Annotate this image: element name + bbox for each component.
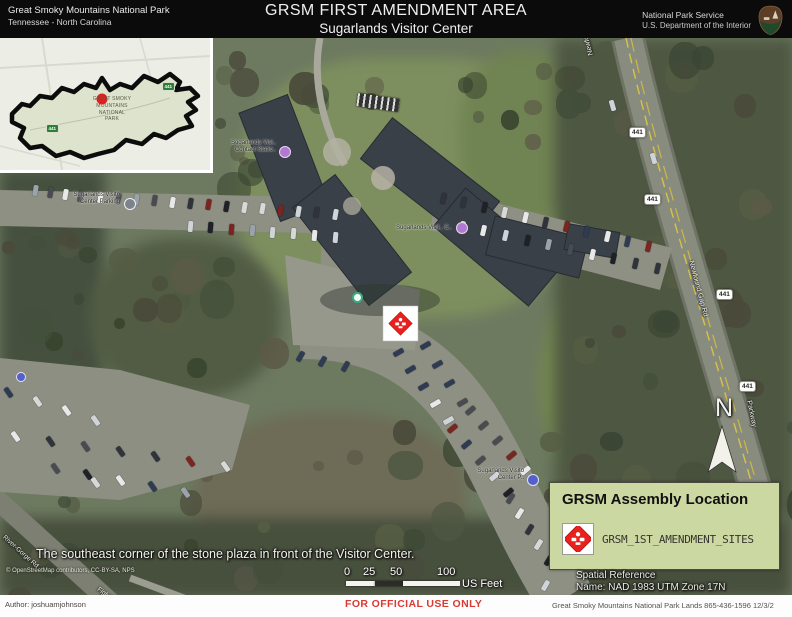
car (291, 228, 297, 239)
poi-label-south-parking: Sugarlands Visito Center P.. (470, 468, 524, 481)
car (523, 234, 530, 246)
car (603, 230, 610, 242)
park-contact-info: Great Smoky Mountains National Park Land… (552, 601, 774, 610)
car (514, 508, 524, 520)
car (653, 262, 660, 274)
car (419, 340, 431, 350)
north-label: N (698, 394, 750, 423)
route-shield-441: 441 (739, 381, 756, 392)
poi-label-parking: Sugarlands Visito Center Parking (62, 192, 120, 205)
car (417, 381, 429, 391)
car (115, 474, 125, 486)
car (501, 206, 508, 218)
inset-shield-441b: 441 (46, 124, 59, 133)
scale-unit: US Feet (462, 578, 502, 590)
car (524, 523, 534, 535)
car (32, 395, 42, 407)
car (340, 360, 350, 372)
car (3, 386, 13, 398)
car (249, 225, 255, 236)
car (521, 211, 528, 223)
car (32, 184, 39, 196)
car (492, 435, 504, 446)
spatial-reference: Spatial Reference Name: NAD 1983 UTM Zon… (576, 570, 726, 593)
car (464, 405, 476, 416)
car (439, 192, 446, 204)
scale-tick-25: 25 (363, 566, 375, 578)
car (313, 207, 320, 219)
poi-label-visitor-center: Sugarlands Visit.. C.. (370, 225, 452, 232)
car (150, 450, 160, 462)
car (610, 253, 617, 265)
car (270, 227, 276, 238)
visitor-center-marker (456, 222, 468, 234)
car (47, 186, 54, 198)
scale-segment (346, 581, 375, 586)
scale-tick-50: 50 (390, 566, 402, 578)
car (442, 415, 454, 425)
car (478, 420, 490, 431)
car (169, 196, 176, 208)
site-point-marker (352, 292, 363, 303)
footer-bar: Author: joshuamjohnson FOR OFFICIAL USE … (0, 595, 792, 617)
car (90, 476, 100, 488)
car (446, 423, 458, 434)
car (533, 539, 543, 551)
north-indicator: N (698, 394, 750, 423)
car (80, 440, 90, 452)
car (649, 152, 657, 164)
header-left: Great Smoky Mountains National Park Tenn… (8, 5, 170, 28)
car (392, 347, 404, 357)
legend-box: GRSM Assembly Location GRSM_1ST_AMENDMEN… (549, 482, 780, 570)
park-states: Tennessee - North Carolina (8, 17, 170, 28)
scale-tick-100: 100 (437, 566, 455, 578)
car (567, 243, 574, 255)
car (480, 202, 487, 214)
agency-name: National Park Service (642, 10, 751, 21)
car (45, 435, 55, 447)
car (318, 355, 328, 367)
official-use-notice: FOR OFFICIAL USE ONLY (345, 598, 482, 610)
car (460, 439, 472, 450)
car (502, 229, 509, 241)
car (460, 197, 467, 209)
car (644, 240, 651, 252)
car (228, 223, 234, 234)
inset-locator-map: GREAT SMOKY MOUNTAINS NATIONAL PARK 441 … (0, 38, 213, 173)
parking-marker (124, 198, 136, 210)
inset-park-label: GREAT SMOKY MOUNTAINS NATIONAL PARK (72, 96, 152, 123)
car (588, 248, 595, 260)
car (259, 203, 266, 215)
legend-swatch (562, 523, 594, 555)
header-bar: Great Smoky Mountains National Park Tenn… (0, 0, 792, 38)
south-parking-marker (527, 474, 539, 486)
car (505, 450, 517, 461)
car (332, 231, 338, 242)
route-shield-441: 441 (716, 289, 733, 300)
car (295, 350, 305, 362)
map-attribution: © OpenStreetMap contributors, CC-BY-SA, … (6, 568, 135, 574)
car (404, 364, 416, 374)
car (431, 359, 443, 369)
car (545, 239, 552, 251)
legend-title: GRSM Assembly Location (562, 491, 748, 508)
site-caption: The southeast corner of the stone plaza … (36, 547, 414, 561)
car (61, 405, 71, 417)
car (185, 455, 195, 467)
car (205, 199, 212, 211)
park-name: Great Smoky Mountains National Park (8, 5, 170, 17)
car (115, 445, 125, 457)
route-shield-441: 441 (629, 127, 646, 138)
car (277, 204, 284, 216)
car (187, 220, 193, 231)
car (187, 198, 194, 210)
car (208, 222, 214, 233)
car (456, 397, 468, 407)
inset-shield-441: 441 (162, 82, 175, 91)
map-title: GRSM FIRST AMENDMENT AREA (265, 2, 527, 20)
car (562, 221, 569, 233)
car (90, 414, 100, 426)
spatial-reference-name: Name: NAD 1983 UTM Zone 17N (576, 582, 726, 594)
car (180, 486, 190, 498)
car (220, 460, 230, 472)
car (540, 579, 550, 591)
map-canvas: Sugarlands Visito Center Parking Sugarla… (0, 38, 792, 595)
scale-segment (403, 581, 460, 586)
car (583, 226, 590, 238)
map-document: Great Smoky Mountains National Park Tenn… (0, 0, 792, 617)
car (480, 225, 487, 237)
agency-dept: U.S. Department of the Interior (642, 21, 751, 31)
car (542, 216, 549, 228)
spatial-reference-title: Spatial Reference (576, 570, 726, 582)
nps-arrowhead-icon (757, 5, 784, 36)
contact-station-marker (279, 146, 291, 158)
car (50, 462, 60, 474)
scale-tick-0: 0 (344, 566, 350, 578)
car (241, 202, 248, 214)
car (444, 378, 456, 388)
car (151, 195, 158, 207)
car (429, 398, 441, 408)
author-credit: Author: joshuamjohnson (5, 600, 86, 609)
header-right: National Park Service U.S. Department of… (642, 5, 784, 36)
first-amendment-site-icon (565, 526, 591, 552)
route-shield-441: 441 (644, 194, 661, 205)
car (10, 430, 20, 442)
map-subtitle: Sugarlands Visitor Center (265, 21, 527, 36)
header-title-block: GRSM FIRST AMENDMENT AREA Sugarlands Vis… (265, 2, 527, 36)
car (223, 200, 230, 212)
car (332, 208, 339, 220)
car (632, 257, 639, 269)
car (624, 235, 631, 247)
car (311, 230, 317, 241)
car (295, 206, 302, 218)
accessible-parking-marker (16, 372, 26, 382)
car (608, 99, 616, 111)
poi-label-contact-station: Sugarlands Visi.. Contact Statio.. (222, 140, 276, 153)
scale-segment (375, 581, 403, 586)
car (474, 455, 486, 466)
legend-item-label: GRSM_1ST_AMENDMENT_SITES (602, 533, 754, 546)
car (147, 480, 157, 492)
